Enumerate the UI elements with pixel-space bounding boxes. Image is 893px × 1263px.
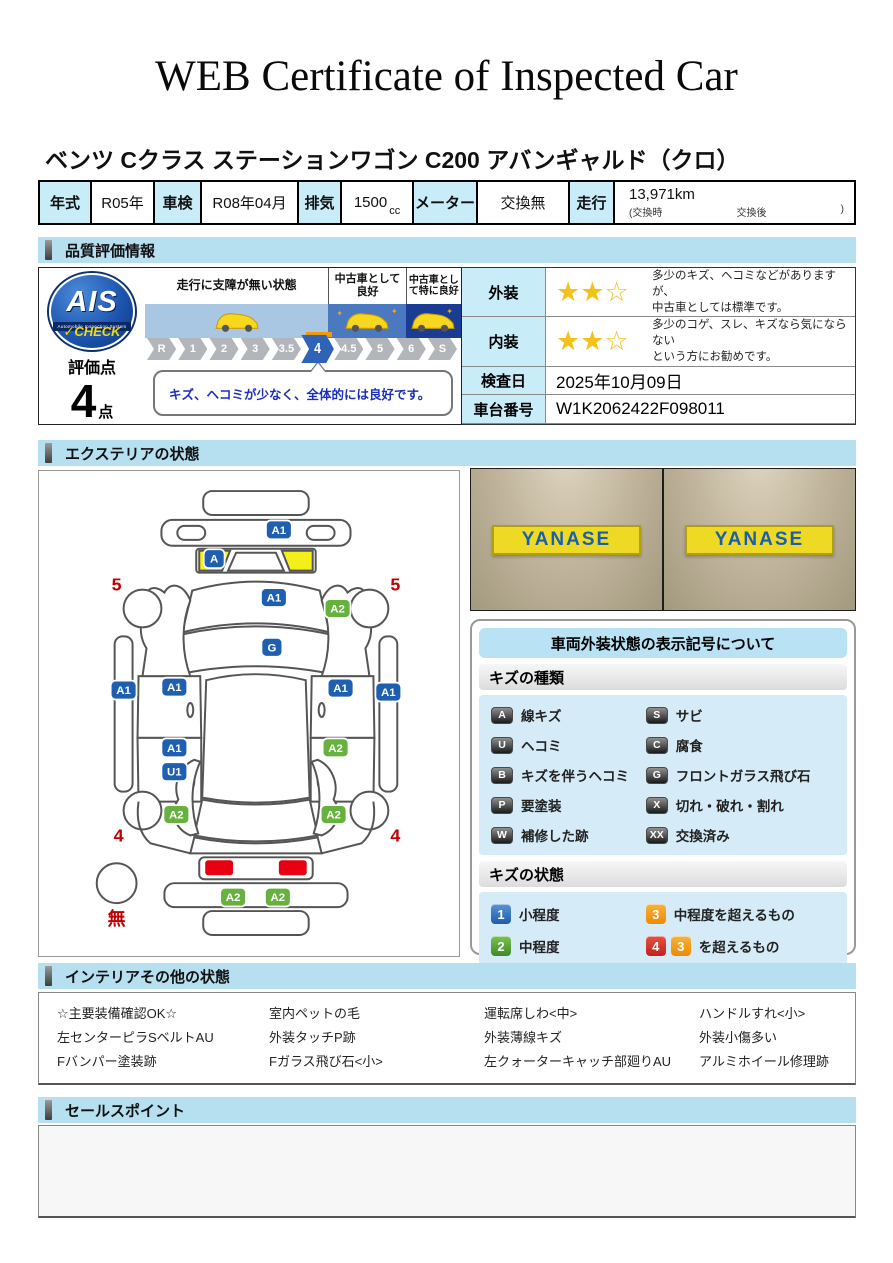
status-item: 外装タッチP跡 [269,1027,484,1046]
vehicle-photo: YANASE [471,469,662,610]
status-column: ハンドルすれ<小>外装小傷多いアルミホイール修理跡 [699,1003,851,1083]
legend-item: 1小程度 [491,904,646,924]
score-number: 4 [71,378,97,424]
legend-item-label: フロントガラス飛び石 [676,765,811,785]
scale-step: R [147,338,176,360]
interior-rating-value: ★★☆ 多少のコゲ、スレ、キズなら気にならない という方にお勧めです。 [545,317,855,366]
ais-score-column: AIS Automobile Inspection System ✓CHECK … [39,268,145,424]
damage-legend-panel: 車両外装状態の表示記号について キズの種類 A線キズSサビUヘコミC腐食Bキズを… [470,619,856,955]
displacement-value: 1500 cc [342,182,414,223]
star-icon: ★ [580,326,604,356]
vin-label: 車台番号 [462,395,545,424]
shaken-label: 車検 [155,182,202,223]
status-item: 外装小傷多い [699,1027,851,1046]
car-icon [214,309,260,333]
quality-panel: AIS Automobile Inspection System ✓CHECK … [38,267,856,425]
legend-title: 車両外装状態の表示記号について [479,628,847,658]
severity-badge: 4 [646,936,666,956]
legend-item: 2中程度 [491,936,646,956]
yanase-sign-text: YANASE [522,529,611,551]
tire-mark: 4 [114,825,124,845]
legend-states-title: キズの状態 [479,861,847,887]
inspection-date-value: 2025年10月09日 [545,367,855,396]
zone-band-2: ✦ ✦ [328,304,405,338]
legend-item-label: 切れ・破れ・割れ [676,795,784,815]
car-damage-diagram: A1AA1A2GA1A1A1A1A1U1A2A2A2A2A25544無 [38,470,460,957]
damage-code-badge: XX [646,827,668,844]
damage-badge-label: A [210,554,218,566]
comment-text: キズ、ヘコミが少なく、全体的には良好です。 [169,384,430,403]
scale-step: S [428,338,457,360]
mileage-note: (交換時 交換後 ) [629,204,844,219]
status-item: Fガラス飛び石<小> [269,1051,484,1070]
damage-badge-label: A2 [326,810,341,822]
tire-mark: 5 [112,575,122,595]
front-trim [203,491,308,515]
damage-code-badge: B [491,767,513,784]
section-header-exterior: エクステリアの状態 [38,440,856,466]
exterior-rating-value: ★★☆ 多少のキズ、ヘコミなどがありますが、 中古車としては標準です。 [545,268,855,317]
front-right-wheel [351,590,389,628]
damage-code-badge: S [646,707,668,724]
damage-badge-label: A2 [271,892,286,904]
displacement-number: 1500 [354,194,387,211]
mileage-number: 13,971km [629,186,844,203]
damage-code-badge: A [491,707,513,724]
severity-badge: 3 [671,936,691,956]
displacement-unit: cc [389,205,400,217]
scale-step: 3 [241,338,270,360]
severity-badge: 3 [646,904,666,924]
legend-item-label: 中程度 [519,936,560,956]
legend-item-label: キズを伴うヘコミ [521,765,629,785]
status-item: 左センターピラSベルトAU [57,1027,269,1046]
score-value: 4 点 [71,378,114,424]
status-item: 室内ペットの毛 [269,1003,484,1022]
status-item: 左クォーターキャッチ部廻りAU [484,1051,699,1070]
page-title: WEB Certificate of Inspected Car [0,52,893,101]
damage-badge-label: A2 [328,743,343,755]
tire-mark: 5 [390,575,400,595]
section-header-sales: セールスポイント [38,1097,856,1123]
section-title: セールスポイント [65,1100,185,1121]
legend-item: C腐食 [646,735,835,755]
damage-code-badge: U [491,737,513,754]
rear-bumper [164,883,347,907]
severity-badge: 2 [491,936,511,956]
section-bar-icon [45,443,52,463]
scale-step: 3.5 [272,338,301,360]
sparkle-icon: ✦ [391,307,398,316]
ais-logo-text: AIS [49,286,135,319]
severity-badge: 1 [491,904,511,924]
zone-label-1: 走行に支障が無い状態 [145,268,328,304]
section-title: エクステリアの状態 [65,443,200,464]
damage-code-badge: P [491,797,513,814]
section-bar-icon [45,240,52,260]
score-unit: 点 [98,405,113,420]
zone-band-3: ✦ [406,304,461,338]
rating-scale-panel: AIS Automobile Inspection System ✓CHECK … [38,267,462,425]
interior-rating-desc: 多少のコゲ、スレ、キズなら気にならない という方にお勧めです。 [652,317,855,365]
damage-code-badge: C [646,737,668,754]
section-title: インテリアその他の状態 [65,966,230,987]
mileage-note-close: ) [841,204,844,219]
roof [202,674,309,802]
vehicle-info-table: 年式 R05年 車検 R08年04月 排気 1500 cc メーター 交換無 走… [38,180,856,225]
damage-code-badge: X [646,797,668,814]
yanase-sign: YANASE [492,525,641,555]
scale-step: 2 [209,338,238,360]
legend-item-label: を超えるもの [699,936,780,956]
interior-status-box: ☆主要装備確認OK☆左センターピラSベルトAUFバンパー塗装跡室内ペットの毛外装… [38,992,856,1085]
spare-tire [97,863,137,903]
certificate-page: WEB Certificate of Inspected Car ベンツ Cクラ… [0,0,893,1263]
damage-badge-label: A1 [167,743,182,755]
legend-item: Uヘコミ [491,735,646,755]
status-item: Fバンパー塗装跡 [57,1051,269,1070]
tire-mark: 無 [108,908,126,929]
damage-badge-label: A1 [333,683,348,695]
legend-item-label: 交換済み [676,825,730,845]
comment-bubble: キズ、ヘコミが少なく、全体的には良好です。 [153,370,453,416]
car-diagram-svg: A1AA1A2GA1A1A1A1A1U1A2A2A2A2A25544無 [39,471,459,956]
exterior-rating-label: 外装 [462,268,545,317]
vehicle-photo: YANASE [664,469,855,610]
bubble-caret [311,363,325,372]
damage-code-badge: G [646,767,668,784]
meter-label: メーター [414,182,478,223]
car-icon [344,309,390,333]
vin-value: W1K2062422F098011 [545,395,855,424]
yanase-sign-text: YANASE [715,529,804,551]
damage-badge-label: U1 [167,767,182,779]
legend-item-label: 要塗装 [521,795,562,815]
zone-label-2: 中古車として良好 [328,268,405,304]
ais-logo: AIS Automobile Inspection System ✓CHECK [49,273,135,350]
legend-item-label: 腐食 [676,735,703,755]
rear-window [194,800,317,842]
legend-item: 43を超えるもの [646,936,835,956]
legend-item: 3中程度を超えるもの [646,904,835,924]
scale-step: 6 [397,338,426,360]
bonnet [182,582,329,633]
right-taillight [279,860,307,875]
mileage-note-open: (交換時 [629,204,662,219]
inspection-date-label: 検査日 [462,367,545,396]
star-icon: ★ [556,326,580,356]
section-header-interior: インテリアその他の状態 [38,963,856,989]
status-item: 運転席しわ<中> [484,1003,699,1022]
star-icon: ★ [580,277,604,307]
legend-item: Sサビ [646,705,835,725]
scale-step: 4 [301,335,334,364]
damage-badge-label: A1 [272,525,287,537]
sales-point-box [38,1125,856,1218]
rear-trim [203,911,308,935]
vehicle-photos: YANASE YANASE [470,468,856,611]
legend-item: Bキズを伴うヘコミ [491,765,646,785]
sparkle-icon: ✦ [336,309,343,318]
ais-check-icon: ✓CHECK [49,324,135,340]
damage-badge-label: A1 [167,682,182,694]
section-bar-icon [45,1100,52,1120]
star-icon: ☆ [604,277,628,307]
legend-item-label: サビ [676,705,703,725]
legend-item-label: 中程度を超えるもの [674,904,795,924]
zone-label-3: 中古車として特に良好 [406,268,461,304]
mileage-value: 13,971km (交換時 交換後 ) [615,182,854,223]
rear-left-wheel [124,792,162,830]
mileage-note-mid: 交換後 [737,204,767,219]
status-item: 外装薄線キズ [484,1027,699,1046]
yanase-sign: YANASE [685,525,834,555]
legend-item: A線キズ [491,705,646,725]
legend-item: X切れ・破れ・割れ [646,795,835,815]
star-icon: ★ [556,277,580,307]
interior-rating-label: 内装 [462,317,545,366]
scale-zone-labels: 走行に支障が無い状態 中古車として良好 中古車として特に良好 [145,268,461,304]
legend-item: Gフロントガラス飛び石 [646,765,835,785]
scale-step: 5 [365,338,394,360]
damage-code-badge: W [491,827,513,844]
star-icon: ☆ [604,326,628,356]
front-left-wheel [124,590,162,628]
year-value: R05年 [92,182,155,223]
status-item: アルミホイール修理跡 [699,1051,851,1070]
zone-band-1 [145,304,328,338]
legend-item-label: 補修した跡 [521,825,589,845]
legend-item-label: 小程度 [519,904,560,924]
year-label: 年式 [40,182,92,223]
damage-badge-label: A2 [330,603,345,615]
quality-table: 外装 ★★☆ 多少のキズ、ヘコミなどがありますが、 中古車としては標準です。 内… [462,267,856,425]
sparkle-icon: ✦ [446,307,453,316]
status-item: ハンドルすれ<小> [699,1003,851,1022]
section-bar-icon [45,966,52,986]
meter-value: 交換無 [478,182,570,223]
shaken-value: R08年04月 [202,182,299,223]
tire-mark: 4 [390,825,400,845]
interior-stars: ★★☆ [556,328,652,355]
status-item: ☆主要装備確認OK☆ [57,1003,269,1022]
legend-states-grid: 1小程度3中程度を超えるもの2中程度43を超えるもの [479,892,847,968]
damage-badge-label: A2 [169,810,184,822]
status-column: ☆主要装備確認OK☆左センターピラSベルトAUFバンパー塗装跡 [57,1003,269,1083]
left-rocker [115,636,133,791]
left-taillight [205,860,233,875]
windshield [170,626,341,676]
section-header-quality: 品質評価情報 [38,237,856,263]
legend-item-label: ヘコミ [521,735,562,755]
rear-right-wheel [351,792,389,830]
exterior-rating-desc: 多少のキズ、ヘコミなどがありますが、 中古車としては標準です。 [652,268,855,316]
rating-scale: 走行に支障が無い状態 中古車として良好 中古車として特に良好 ✦ ✦ [145,268,461,424]
scale-steps: R1233.544.556S [145,338,461,360]
scale-step: 4.5 [334,338,363,360]
section-title: 品質評価情報 [65,240,155,261]
damage-badge-label: A2 [226,892,241,904]
legend-item-label: 線キズ [521,705,562,725]
damage-badge-label: A1 [381,687,396,699]
damage-badge-label: G [267,642,276,654]
legend-kinds-grid: A線キズSサビUヘコミC腐食Bキズを伴うヘコミGフロントガラス飛び石P要塗装X切… [479,695,847,855]
damage-badge-label: A1 [267,593,282,605]
legend-kinds-title: キズの種類 [479,664,847,690]
mileage-label: 走行 [570,182,615,223]
damage-badge-label: A1 [116,685,131,697]
displacement-label: 排気 [299,182,342,223]
exterior-stars: ★★☆ [556,279,652,306]
legend-item: P要塗装 [491,795,646,815]
scale-zone-band: ✦ ✦ ✦ [145,304,461,338]
car-name: ベンツ Cクラス ステーションワゴン C200 アバンギャルド（クロ） [45,141,739,175]
legend-item: XX交換済み [646,825,835,845]
scale-step: 1 [178,338,207,360]
right-rocker [379,636,397,791]
status-column: 運転席しわ<中>外装薄線キズ左クォーターキャッチ部廻りAU [484,1003,699,1083]
status-column: 室内ペットの毛外装タッチP跡Fガラス飛び石<小> [269,1003,484,1083]
legend-item: W補修した跡 [491,825,646,845]
